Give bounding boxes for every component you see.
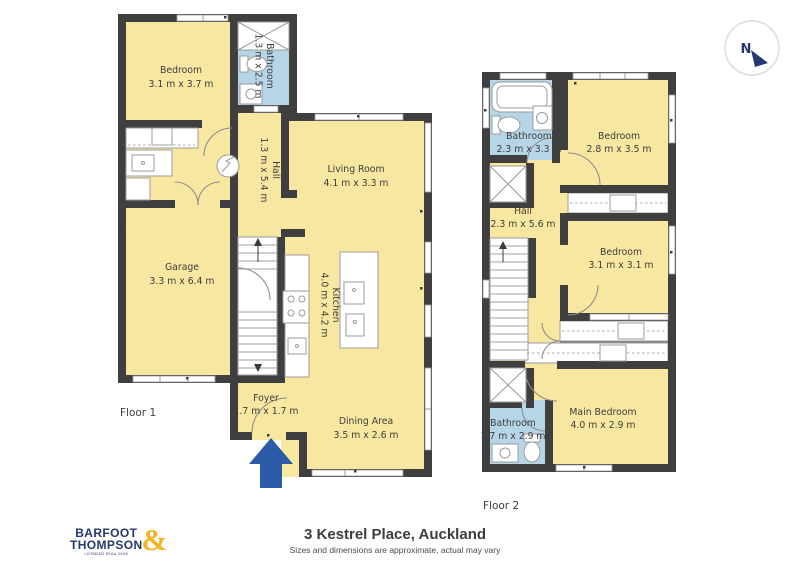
floor1-label: Floor 1 [120, 407, 156, 419]
room-dims: 4.0 m x 2.9 m [570, 420, 635, 431]
compass-circle [725, 21, 779, 75]
room-dims: 1.3 m x 2.5 m [253, 33, 264, 98]
title-block: 3 Kestrel Place, Auckland Sizes and dime… [195, 526, 595, 555]
stove [283, 291, 309, 323]
floor2-stairs [490, 238, 528, 360]
floor2-plan: Bathroom 2.3 m x 3.3 m Bedroom 2.8 m x 3… [480, 72, 676, 512]
disclaimer-text: Sizes and dimensions are approximate, ac… [195, 545, 595, 555]
floorplan-svg: Bedroom 3.1 m x 3.7 m Bathroom 1.3 m x 2… [0, 0, 800, 584]
room-dims: 1.7 m x 2.9 m [480, 431, 545, 442]
floor1-plan: Bedroom 3.1 m x 3.7 m Bathroom 1.3 m x 2… [118, 14, 432, 488]
room-dims: 1.7 m x 1.7 m [233, 406, 298, 417]
room-label: Main Bedroom [569, 407, 636, 418]
wardrobe [525, 343, 668, 363]
room-dims: 3.1 m x 3.7 m [148, 79, 213, 90]
room-label: Bathroom [264, 43, 275, 89]
brand-wordmark: BARFOOT THOMPSON LICENSED REAA 2008 [70, 527, 143, 556]
vanity [533, 106, 552, 130]
garage-door [133, 376, 215, 382]
vanity [492, 444, 518, 462]
floorplan-page: Bedroom 3.1 m x 3.7 m Bathroom 1.3 m x 2… [0, 0, 800, 584]
brand-tagline: LICENSED REAA 2008 [85, 552, 128, 556]
brand-logo: BARFOOT THOMPSON LICENSED REAA 2008 & [70, 527, 167, 556]
room-label: Foyer [253, 393, 279, 404]
room-dims: 3.5 m x 2.6 m [333, 430, 398, 441]
room-label: Bedroom [600, 247, 642, 258]
room-dims: 1.3 m x 5.4 m [258, 137, 269, 202]
room-label: Bedroom [598, 131, 640, 142]
room-label: Bathroom [490, 418, 536, 429]
room-label: Kitchen [330, 288, 341, 323]
room-label: Hall [514, 206, 532, 217]
room-label: Bedroom [160, 65, 202, 76]
room-label: Bathroom [506, 131, 552, 142]
room-dims: 4.1 m x 3.3 m [323, 178, 388, 189]
room-dims: 4.0 m x 4.2 m [319, 272, 330, 337]
bathroom-door-slot [254, 106, 278, 112]
appliance [126, 178, 150, 200]
room-label: Living Room [327, 164, 384, 175]
room-label: Dining Area [339, 416, 393, 427]
room-dims: 3.1 m x 3.1 m [588, 260, 653, 271]
floor2-label: Floor 2 [483, 500, 519, 512]
room-label: Hall [270, 161, 281, 179]
compass-north-label: N [741, 42, 752, 57]
property-address: 3 Kestrel Place, Auckland [195, 526, 595, 543]
room-label: Garage [165, 262, 199, 273]
compass: N [725, 21, 779, 75]
room-dims: 2.8 m x 3.5 m [586, 144, 651, 155]
floor1-stairs [238, 237, 277, 375]
room-dims: 2.3 m x 5.6 m [490, 219, 555, 230]
room-dims: 3.3 m x 6.4 m [149, 276, 214, 287]
brand-line2: THOMPSON [70, 539, 143, 551]
brand-ampersand: & [142, 527, 168, 553]
room-dims: 2.3 m x 3.3 m [496, 144, 561, 155]
